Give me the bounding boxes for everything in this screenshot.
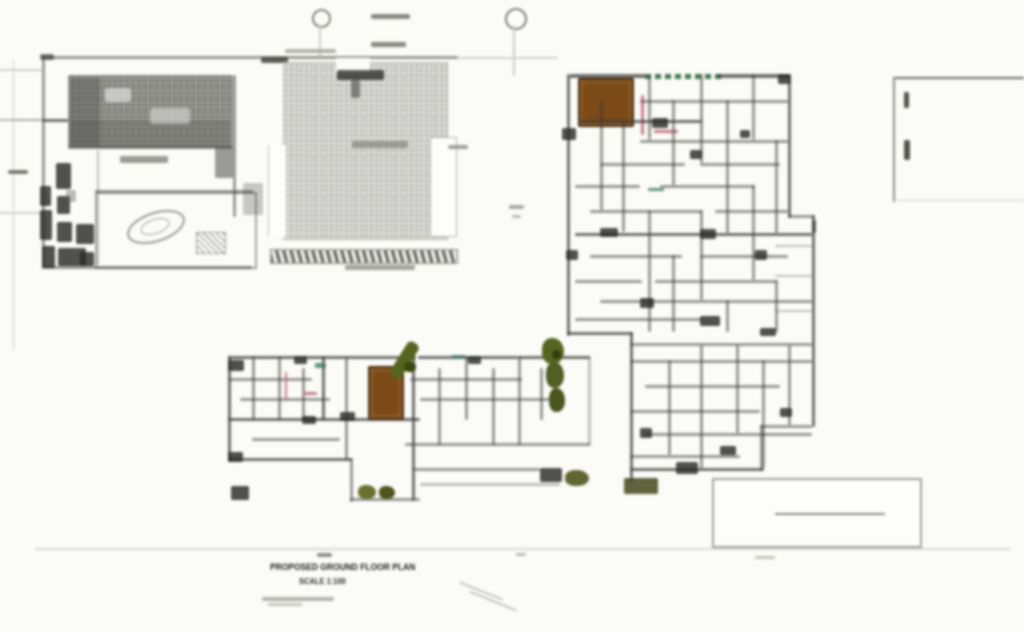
ink-blob — [228, 360, 244, 371]
sheet-margin-line — [13, 60, 14, 350]
wall-segment — [630, 360, 812, 363]
ink-blob — [600, 228, 618, 237]
wall-segment — [700, 210, 703, 300]
planting-blob — [565, 470, 589, 486]
wall-segment — [700, 255, 788, 258]
wall-segment — [775, 280, 778, 332]
ink-blob — [302, 416, 316, 424]
ink-blob — [56, 163, 71, 189]
wall-segment — [420, 483, 560, 486]
drawing-scale: SCALE 1:100 — [299, 577, 346, 586]
dimension-text-blur — [509, 205, 524, 209]
planting-dashes — [645, 74, 721, 79]
datum-tick — [0, 119, 42, 121]
wall-segment — [630, 410, 760, 413]
wall-segment — [668, 360, 671, 455]
ink-blob — [468, 356, 481, 364]
wall-segment — [752, 74, 755, 140]
hatch-light-spot — [105, 88, 131, 102]
red-annotation — [304, 392, 317, 395]
wall-segment — [420, 398, 560, 401]
ink-blob — [652, 118, 668, 128]
wall-segment — [726, 100, 729, 233]
wall-segment — [752, 185, 755, 280]
datum-tick — [0, 212, 42, 214]
drawing-title: PROPOSED GROUND FLOOR PLAN — [270, 562, 415, 572]
ink-blob — [562, 128, 576, 140]
entrance-canopy-mark — [337, 70, 384, 80]
wall-segment — [648, 74, 651, 140]
wall-segment — [660, 185, 755, 188]
perimeter-wall — [567, 332, 633, 335]
ink-blob — [76, 224, 94, 244]
grid-line — [513, 26, 515, 76]
wall-segment — [762, 360, 765, 468]
ink-blob — [66, 190, 76, 202]
wall-segment — [575, 318, 702, 321]
wall-segment — [726, 300, 729, 332]
teal-annotation — [315, 363, 326, 368]
wall-segment — [648, 210, 651, 332]
tree-symbol — [388, 340, 420, 381]
side-bay — [268, 145, 286, 237]
wall-segment — [405, 443, 590, 446]
ink-blob — [755, 250, 767, 260]
perimeter-wall — [412, 468, 540, 471]
ink-blob — [294, 356, 307, 364]
ink-blob — [700, 316, 720, 326]
wall-segment — [590, 210, 702, 213]
dimension-dash — [8, 170, 28, 174]
wall-segment — [252, 356, 255, 420]
wall-segment — [775, 245, 812, 247]
wall-segment — [672, 100, 675, 185]
planting-blob — [624, 478, 658, 494]
wall-segment — [228, 378, 312, 381]
hatch-clump — [215, 148, 233, 178]
ink-blob — [57, 222, 72, 242]
ink-blob — [640, 428, 652, 438]
legend-box-border — [893, 77, 895, 202]
wall-segment — [278, 356, 281, 420]
ink-blob — [42, 246, 55, 268]
caption-mark — [317, 553, 332, 557]
perimeter-wall — [788, 74, 791, 218]
ink-blob — [700, 229, 716, 239]
wall-segment — [600, 300, 812, 303]
dimension-text-blur — [371, 42, 406, 47]
wall-segment — [645, 385, 780, 388]
ink-blob — [690, 150, 702, 159]
ink-blob — [80, 252, 94, 266]
perimeter-wall — [228, 356, 346, 359]
wall-segment — [630, 455, 740, 458]
ink-blob — [340, 412, 355, 421]
dimension-text-blur — [285, 49, 336, 53]
tree-symbol — [552, 350, 561, 359]
legend-box-border — [893, 200, 1024, 201]
ink-blob — [720, 446, 736, 455]
ink-blob — [780, 408, 792, 417]
wall-segment — [622, 122, 625, 232]
wall-segment — [600, 100, 603, 210]
teal-annotation — [648, 188, 664, 191]
ink-blob — [760, 328, 776, 336]
wall-segment — [736, 345, 739, 433]
ribbon-text-line — [775, 513, 885, 515]
ink-blob — [540, 468, 562, 482]
dimension-text-blur — [512, 215, 521, 218]
wall-segment — [345, 356, 348, 460]
ink-blob — [566, 250, 578, 260]
ink-blob — [740, 130, 750, 138]
wall-segment — [252, 438, 340, 441]
wall-segment — [590, 255, 682, 258]
wall-segment — [492, 368, 495, 445]
datum-tick — [0, 69, 42, 71]
wall-segment — [630, 343, 812, 346]
red-annotation — [285, 372, 287, 400]
perimeter-wall — [812, 215, 815, 427]
perimeter-wall — [228, 458, 352, 461]
tree-symbol — [546, 362, 564, 388]
scanned-site-plan-sheet: PROPOSED GROUND FLOOR PLAN SCALE 1:100 — [0, 0, 1024, 631]
wall-segment — [672, 255, 675, 332]
entrance-stem-mark — [351, 80, 360, 98]
hatch-light-spot — [150, 108, 190, 124]
ink-blob — [40, 210, 52, 240]
ink-blob — [40, 186, 51, 206]
legend-box-border — [893, 77, 1024, 79]
ink-blob — [676, 462, 698, 474]
ink-blob — [231, 486, 249, 500]
wall-segment — [575, 185, 640, 188]
building-outline-faint — [458, 57, 558, 59]
wall-segment — [465, 356, 468, 420]
legend-text-blur — [904, 92, 909, 108]
wall-segment — [700, 345, 703, 468]
wall-segment — [640, 100, 788, 103]
teal-annotation — [452, 355, 465, 359]
site-boundary-line — [35, 548, 1010, 550]
perimeter-wall — [228, 356, 231, 462]
wall-segment — [775, 140, 778, 233]
legend-text-blur — [904, 140, 910, 160]
strip-label-blur — [345, 265, 415, 270]
wall-segment — [578, 120, 702, 123]
tree-symbol — [549, 388, 565, 412]
dimension-text-blur — [516, 553, 526, 556]
ink-blob — [640, 298, 654, 308]
perimeter-wall — [350, 458, 353, 502]
wall-segment — [438, 368, 441, 445]
plan-artwork: PROPOSED GROUND FLOOR PLAN SCALE 1:100 — [0, 0, 1024, 631]
room-label-blur — [120, 156, 168, 163]
planting-blob — [358, 485, 376, 499]
wall-segment — [775, 310, 812, 312]
caption-underline-blur — [262, 597, 334, 601]
wall-segment — [775, 275, 812, 277]
planting-blob — [379, 486, 395, 499]
hatched-wall-strip — [270, 249, 458, 264]
side-bay — [430, 137, 457, 237]
perimeter-wall — [760, 425, 812, 428]
dimension-tick — [812, 220, 816, 233]
stippled-courtyard — [283, 62, 448, 240]
tree-symbol — [404, 362, 416, 372]
dimension-text-blur — [371, 14, 410, 19]
grid-bubble — [505, 8, 527, 30]
wall-segment — [575, 280, 642, 283]
wall-segment — [700, 163, 780, 166]
perimeter-wall — [588, 356, 591, 446]
dimension-text-blur — [448, 145, 468, 149]
perimeter-wall — [788, 215, 814, 218]
building-outline — [42, 266, 252, 269]
perimeter-wall — [630, 332, 633, 482]
wall-segment — [540, 368, 543, 420]
hatch-clump — [70, 120, 230, 146]
wall-segment — [518, 356, 521, 445]
hatched-fixture — [196, 232, 226, 254]
building-outline — [42, 56, 458, 59]
wall-segment — [640, 140, 788, 143]
ink-blob — [228, 452, 243, 462]
pencil-scribble — [459, 581, 502, 600]
perimeter-wall — [567, 74, 570, 336]
wall-segment — [68, 146, 233, 149]
grid-bubble — [312, 9, 331, 28]
dimension-text-blur — [755, 556, 775, 559]
area-label-blur — [352, 141, 408, 148]
caption-underline-blur — [268, 603, 302, 606]
